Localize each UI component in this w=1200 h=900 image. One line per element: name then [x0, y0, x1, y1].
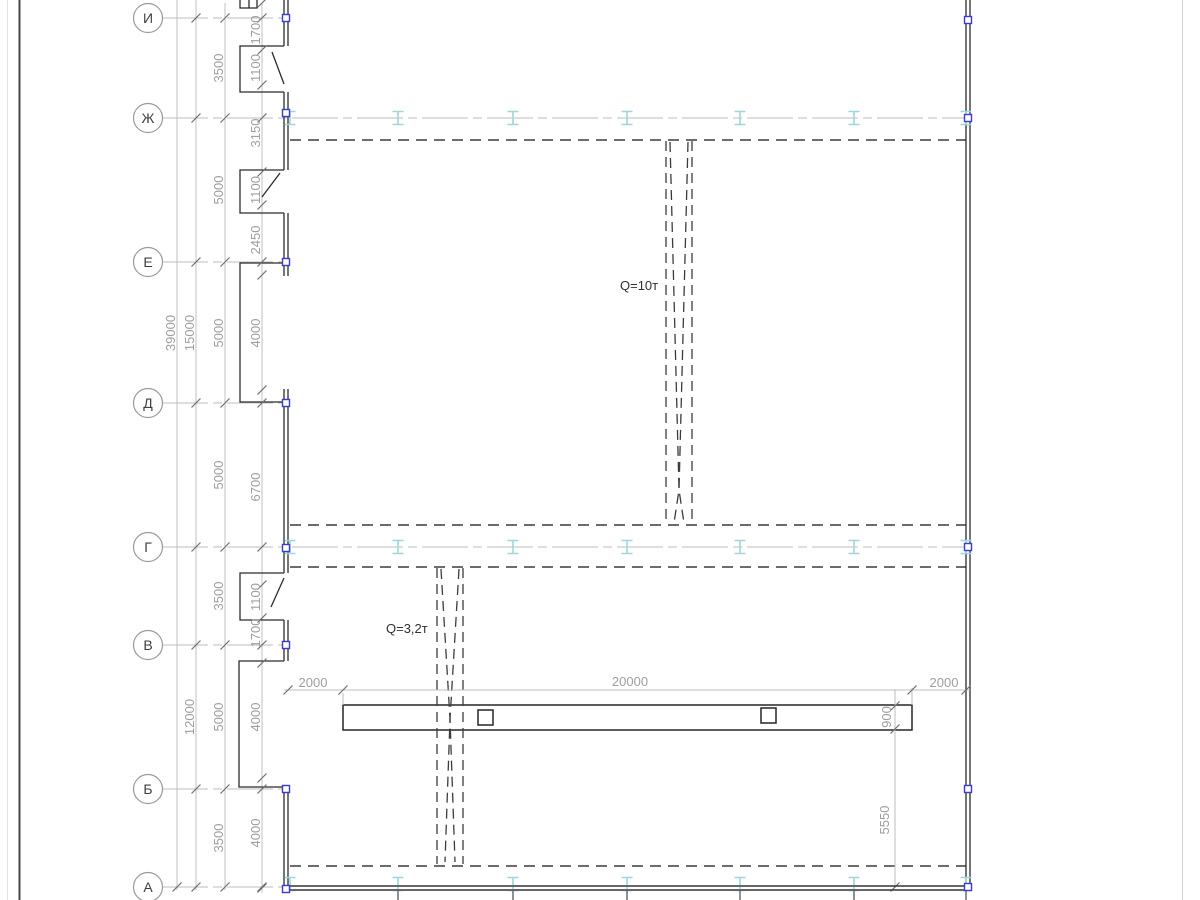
- axis-bubble-labels: И Ж Е Д Г В Б А: [142, 10, 155, 895]
- dim-bottom-0: 2000: [299, 675, 328, 690]
- wall-node-markers: [283, 15, 972, 893]
- dim-detail-2: 3150: [248, 119, 263, 148]
- rail-supports: [285, 112, 972, 900]
- crane-labels: Q=10т Q=3,2т: [386, 278, 658, 636]
- crane-symbol-10t: [666, 141, 692, 524]
- node-square-icon: [283, 400, 290, 407]
- axis-label-d: Д: [143, 395, 153, 411]
- i-beam-icon: [849, 878, 860, 891]
- beam-opening-2: [761, 708, 776, 723]
- dim-12000: 12000: [182, 699, 197, 735]
- walls: [239, 0, 970, 890]
- dim-detail-4: 2450: [248, 226, 263, 255]
- dim-detail-1: 1100: [248, 54, 263, 82]
- node-square-icon: [965, 544, 972, 551]
- node-square-icon: [965, 115, 972, 122]
- axis-grid-lines: [162, 18, 966, 887]
- dim-axis-2: 5000: [211, 319, 226, 348]
- dim-detail-0: 1700: [248, 16, 263, 45]
- left-wall: [284, 0, 288, 886]
- axis-label-e: Е: [143, 254, 152, 270]
- dim-detail-5: 4000: [248, 319, 263, 348]
- node-square-icon: [283, 786, 290, 793]
- node-square-icon: [283, 110, 290, 117]
- axis-label-i: И: [143, 10, 153, 26]
- dimension-texts-horizontal: 2000 20000 2000: [299, 674, 959, 690]
- dim-axis-1: 5000: [211, 176, 226, 205]
- monorail-beam: [343, 705, 912, 730]
- node-square-icon: [283, 15, 290, 22]
- dim-detail-8: 1700: [248, 619, 263, 648]
- crane-label-10t: Q=10т: [620, 278, 658, 293]
- axis-bubbles: [134, 4, 163, 900]
- node-square-icon: [283, 545, 290, 552]
- beam-outline: [343, 705, 912, 730]
- crane-label-3-2t: Q=3,2т: [386, 621, 428, 636]
- dim-axis-5: 5000: [211, 703, 226, 732]
- i-beam-icon: [735, 878, 746, 891]
- dim-axis-4: 3500: [211, 582, 226, 611]
- beam-opening-1: [478, 710, 493, 725]
- dim-detail-6: 6700: [248, 473, 263, 502]
- dim-detail-3: 1100: [248, 176, 263, 204]
- dim-bottom-1: 20000: [612, 674, 648, 689]
- dim-beam-height: 900: [879, 706, 894, 728]
- axis-label-zh: Ж: [142, 110, 155, 126]
- cad-canvas: И Ж Е Д Г В Б А 39000 15000 12000 3500 5…: [0, 0, 1200, 900]
- dim-beam-offset: 5550: [877, 806, 892, 835]
- dimension-ticks: [173, 0, 971, 893]
- node-square-icon: [965, 884, 972, 891]
- dim-overall: 39000: [163, 315, 178, 351]
- crane-runways: [290, 140, 966, 866]
- dim-axis-6: 3500: [211, 824, 226, 853]
- i-beam-icon: [508, 878, 519, 891]
- axis-label-v: В: [143, 637, 152, 653]
- dim-15000: 15000: [182, 315, 197, 351]
- right-wall: [966, 0, 970, 890]
- plan-drawing: И Ж Е Д Г В Б А 39000 15000 12000 3500 5…: [0, 0, 1200, 900]
- node-square-icon: [283, 259, 290, 266]
- node-square-icon: [965, 786, 972, 793]
- rail-supports-bottom: [285, 878, 972, 891]
- dim-detail-7: 1100: [248, 583, 263, 611]
- i-beam-icon: [622, 878, 633, 891]
- dim-axis-0: 3500: [211, 54, 226, 83]
- axis-label-a: А: [143, 879, 153, 895]
- dim-axis-3: 5000: [211, 461, 226, 490]
- dim-detail-9: 4000: [248, 703, 263, 732]
- axis-label-b: Б: [143, 781, 152, 797]
- node-square-icon: [965, 17, 972, 24]
- node-square-icon: [283, 642, 290, 649]
- dim-bottom-2: 2000: [930, 675, 959, 690]
- node-square-icon: [283, 886, 290, 893]
- axis-label-g: Г: [144, 539, 152, 555]
- dim-detail-10: 4000: [248, 819, 263, 848]
- page-frame: [8, 0, 1183, 900]
- i-beam-icon: [393, 878, 404, 891]
